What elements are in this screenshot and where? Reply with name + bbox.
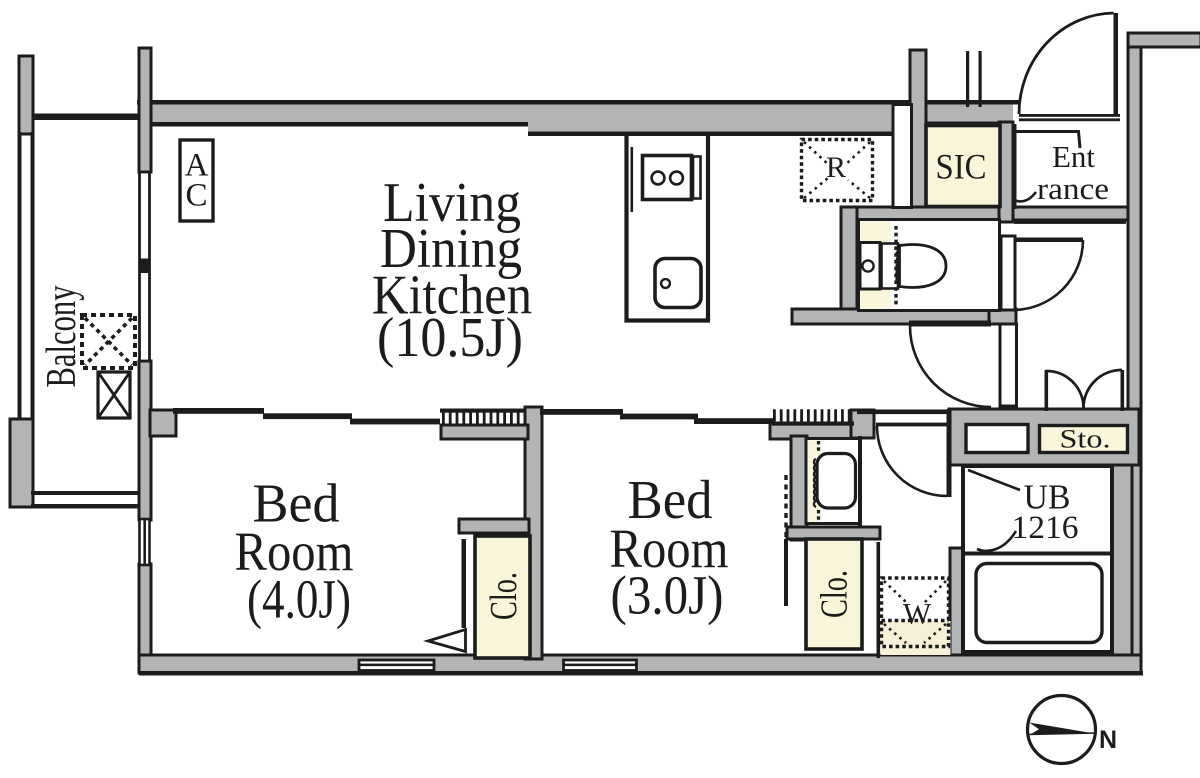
svg-text:(10.5J): (10.5J) bbox=[377, 307, 523, 369]
svg-text:(3.0J): (3.0J) bbox=[611, 565, 724, 626]
svg-text:R: R bbox=[826, 151, 846, 184]
svg-text:W: W bbox=[903, 598, 932, 631]
svg-text:Sto.: Sto. bbox=[1060, 425, 1111, 454]
svg-text:SIC: SIC bbox=[936, 147, 987, 187]
svg-text:Ent: Ent bbox=[1052, 139, 1095, 174]
svg-text:1216: 1216 bbox=[1012, 510, 1079, 546]
svg-text:Balcony: Balcony bbox=[39, 286, 85, 388]
svg-text:Clo.: Clo. bbox=[814, 570, 856, 618]
svg-text:(4.0J): (4.0J) bbox=[247, 569, 351, 630]
svg-text:C: C bbox=[185, 178, 207, 214]
svg-text:N: N bbox=[1099, 726, 1117, 754]
svg-text:rance: rance bbox=[1037, 171, 1109, 206]
svg-text:Clo.: Clo. bbox=[483, 572, 525, 620]
